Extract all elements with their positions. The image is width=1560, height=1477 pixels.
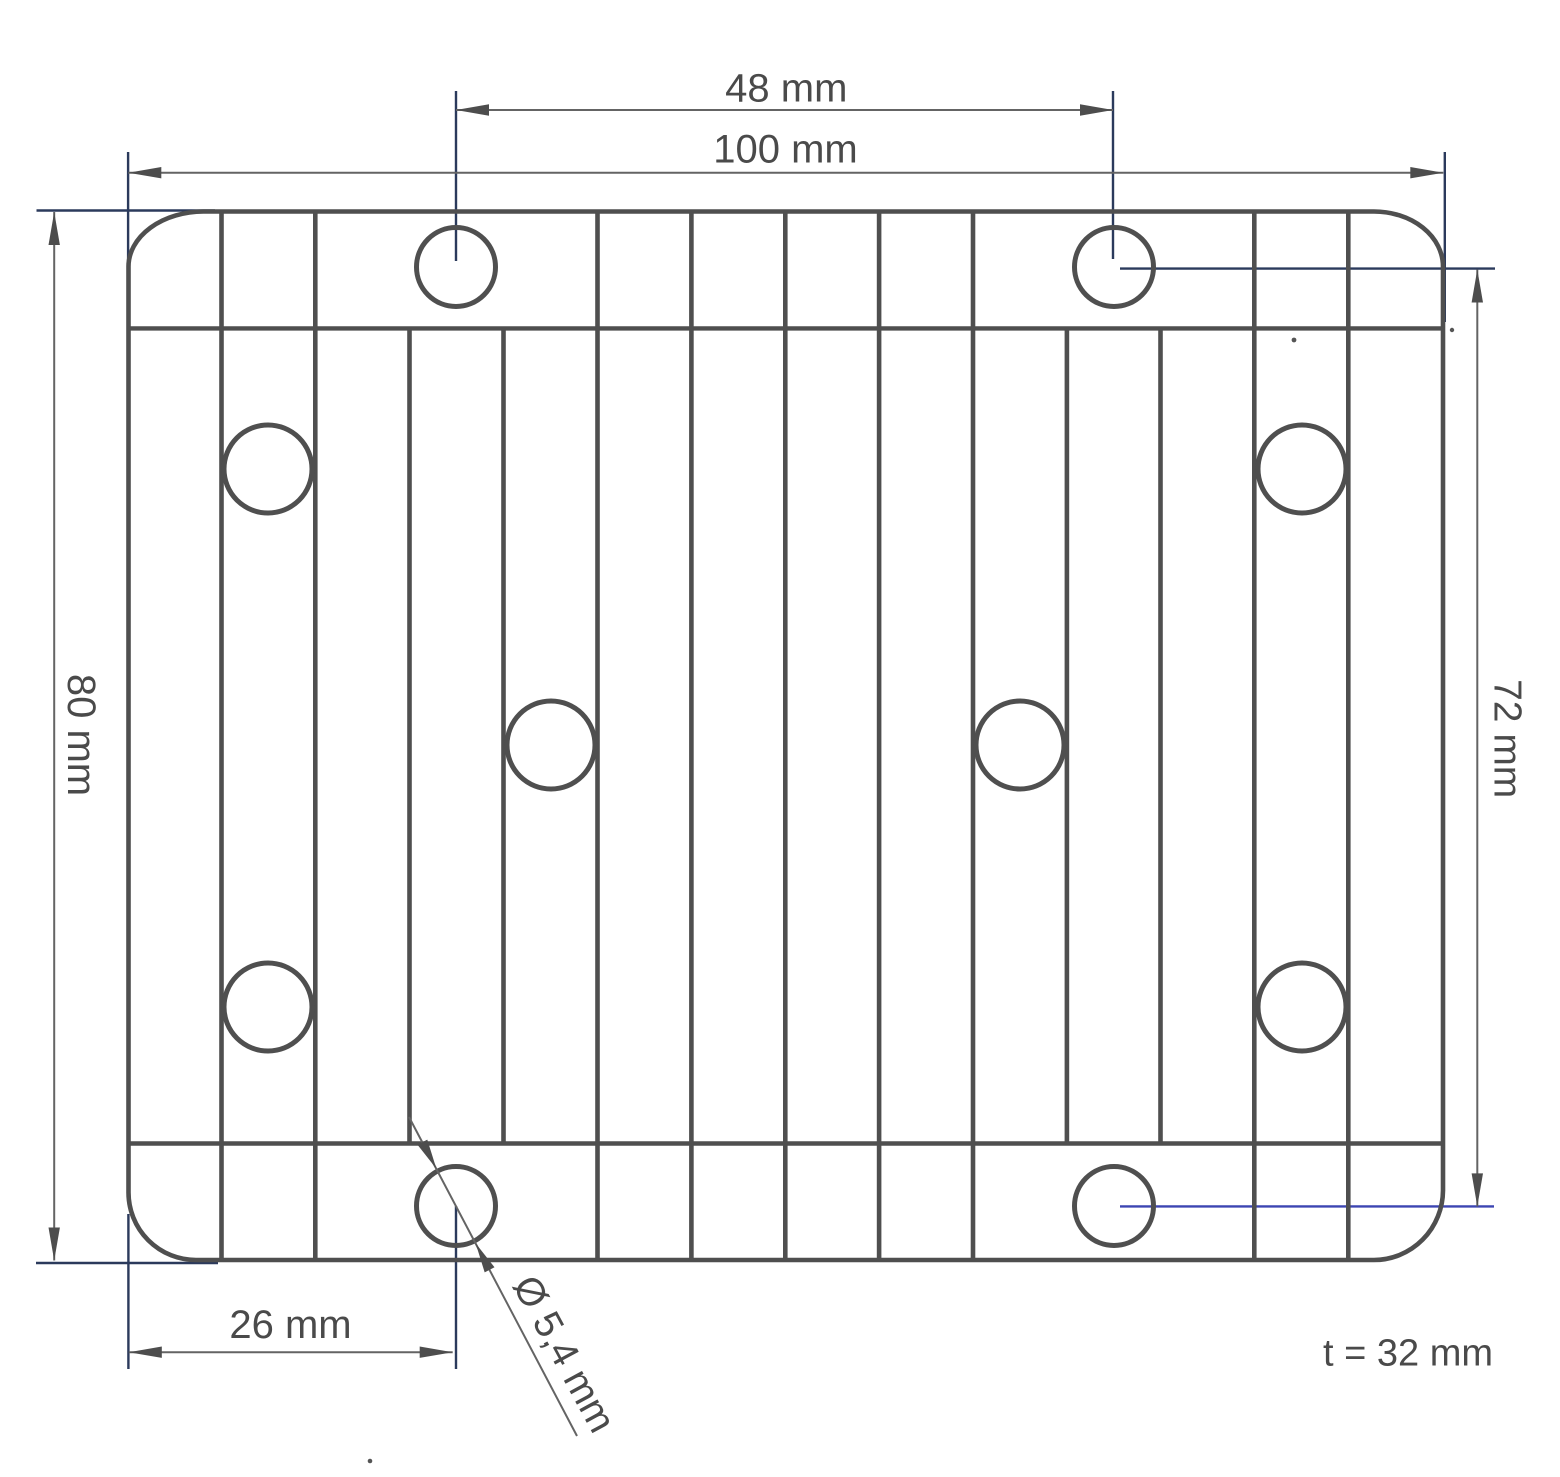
svg-text:100 mm: 100 mm <box>713 128 858 172</box>
svg-text:t = 32 mm: t = 32 mm <box>1323 1333 1493 1375</box>
svg-text:48 mm: 48 mm <box>725 66 847 110</box>
svg-text:72 mm: 72 mm <box>1486 679 1529 798</box>
svg-text:26 mm: 26 mm <box>229 1303 351 1347</box>
svg-text:80 mm: 80 mm <box>59 674 103 796</box>
